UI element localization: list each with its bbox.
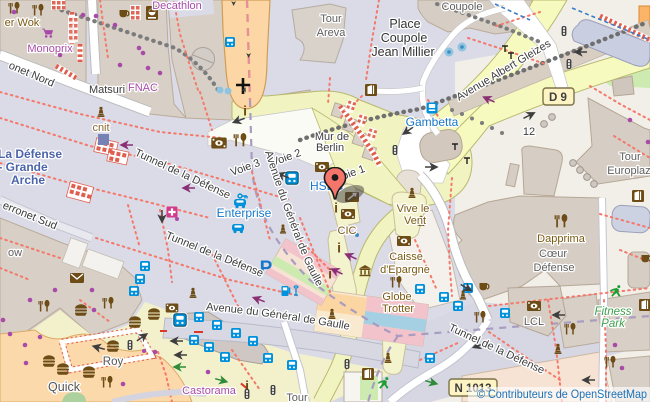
svg-text:Coupole: Coupole: [381, 31, 428, 45]
svg-text:Monoprix: Monoprix: [27, 43, 73, 55]
svg-text:Globe: Globe: [382, 291, 411, 303]
svg-text:© Contributeurs de OpenStreetM: © Contributeurs de OpenStreetMap: [477, 387, 647, 401]
svg-text:ow: ow: [8, 247, 22, 259]
svg-text:Areva: Areva: [317, 27, 347, 39]
svg-text:- Grande: - Grande: [0, 160, 48, 174]
svg-text:Vent: Vent: [404, 215, 426, 227]
svg-text:Castorama: Castorama: [182, 385, 237, 397]
svg-text:Matsuri: Matsuri: [89, 84, 125, 96]
svg-text:Arche: Arche: [11, 173, 45, 187]
svg-text:Tour: Tour: [619, 151, 641, 163]
svg-text:Défense: Défense: [534, 262, 575, 274]
svg-text:d'Epargne: d'Epargne: [380, 264, 430, 276]
svg-text:CIC: CIC: [338, 225, 357, 237]
svg-text:12: 12: [523, 126, 535, 138]
svg-text:Europlaza: Europlaza: [607, 165, 650, 177]
svg-text:Quick: Quick: [48, 380, 81, 394]
svg-text:Tour: Tour: [320, 13, 342, 25]
svg-text:LCL: LCL: [524, 316, 544, 328]
svg-text:er Wok: er Wok: [5, 17, 40, 29]
svg-text:Coupole: Coupole: [442, 1, 483, 13]
svg-text:D 9: D 9: [549, 92, 567, 104]
svg-text:Trotter: Trotter: [382, 303, 414, 315]
svg-text:Dapprima: Dapprima: [537, 233, 586, 245]
svg-text:Park: Park: [601, 318, 626, 330]
svg-text:Decathlon: Decathlon: [152, 0, 202, 12]
svg-text:Caisse: Caisse: [389, 251, 423, 263]
svg-text:Tour: Tour: [286, 392, 308, 402]
svg-text:Roy: Roy: [103, 356, 124, 368]
svg-text:FNAC: FNAC: [128, 82, 158, 94]
svg-text:La Défense: La Défense: [0, 147, 62, 161]
svg-text:cnit: cnit: [92, 122, 109, 134]
svg-text:Place: Place: [389, 17, 420, 31]
svg-text:Enterprise: Enterprise: [217, 206, 272, 220]
svg-text:Gambetta: Gambetta: [406, 115, 459, 129]
svg-text:Cœur: Cœur: [539, 248, 567, 260]
svg-text:Jean Millier: Jean Millier: [371, 45, 434, 59]
svg-text:Vive le: Vive le: [397, 203, 430, 215]
svg-text:Fitness: Fitness: [594, 306, 631, 318]
svg-text:Berlin: Berlin: [316, 142, 344, 154]
